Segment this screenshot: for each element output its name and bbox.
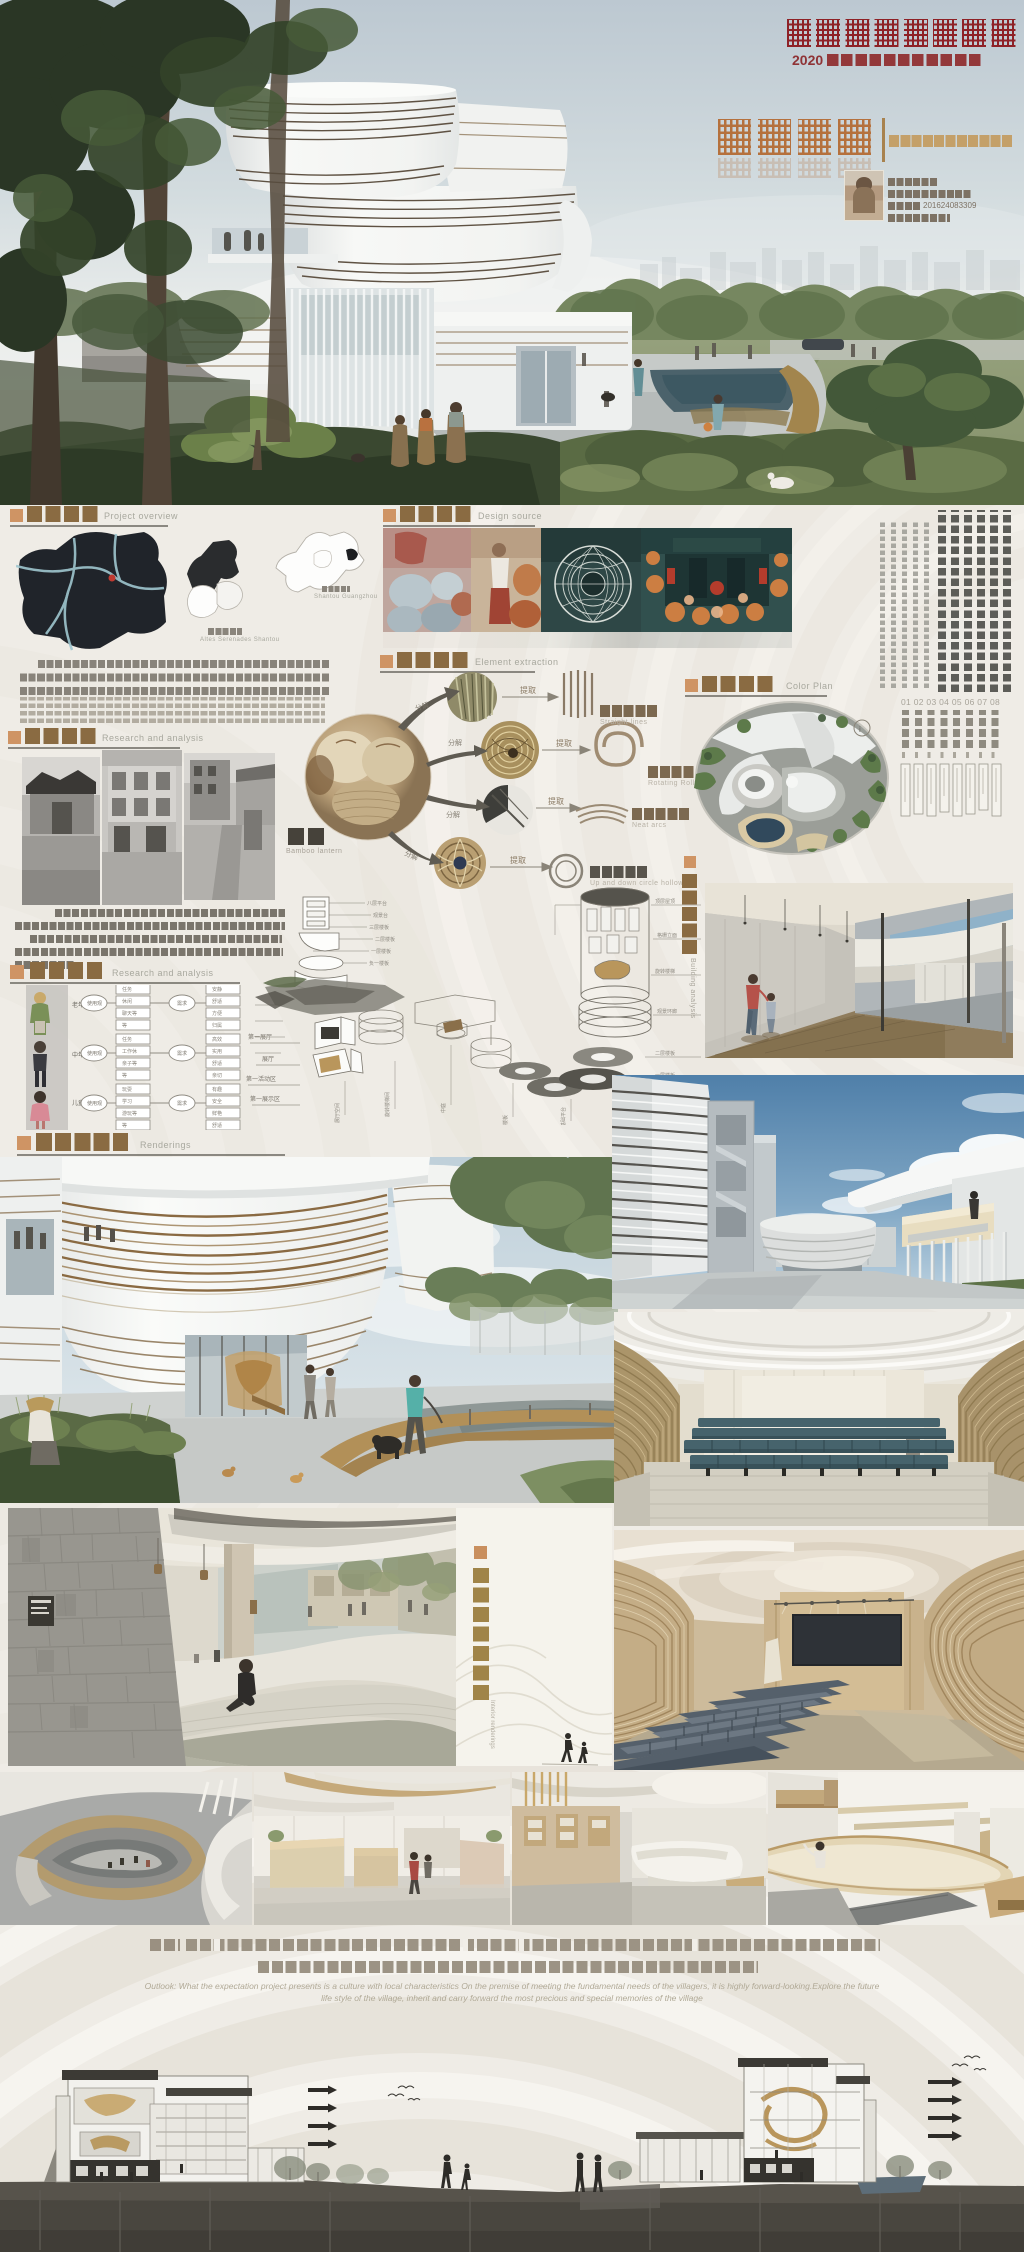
svg-text:等: 等: [122, 1072, 127, 1079]
svg-text:安全: 安全: [212, 1098, 222, 1105]
svg-text:使用观: 使用观: [87, 1100, 102, 1107]
svg-text:学习: 学习: [122, 1098, 132, 1105]
svg-text:一层楼板: 一层楼板: [371, 948, 391, 955]
svg-text:使用观: 使用观: [87, 1050, 102, 1057]
svg-text:负一楼板: 负一楼板: [369, 960, 389, 967]
svg-text:八层平台: 八层平台: [367, 900, 387, 907]
svg-text:休闲: 休闲: [122, 998, 132, 1005]
svg-text:分解: 分解: [448, 738, 462, 747]
svg-text:观景台: 观景台: [373, 912, 388, 919]
svg-text:旋转楼梯: 旋转楼梯: [655, 968, 675, 975]
svg-text:楼板: 楼板: [502, 1115, 509, 1125]
svg-text:安静: 安静: [212, 986, 222, 993]
svg-text:有趣: 有趣: [212, 1086, 222, 1093]
svg-text:提取: 提取: [520, 685, 536, 695]
svg-text:提取: 提取: [510, 855, 526, 865]
svg-text:二层楼板: 二层楼板: [375, 936, 395, 943]
svg-text:基础平台: 基础平台: [560, 1107, 567, 1125]
svg-text:高效: 高效: [212, 1036, 222, 1043]
svg-text:实用: 实用: [212, 1048, 222, 1055]
svg-text:展厅空间: 展厅空间: [334, 1103, 341, 1123]
svg-text:等: 等: [122, 1122, 127, 1129]
svg-text:使用观: 使用观: [87, 1000, 102, 1007]
svg-text:舒适: 舒适: [212, 1122, 222, 1129]
svg-text:玩耍: 玩耍: [122, 1087, 132, 1093]
svg-text:顶层屋顶: 顶层屋顶: [655, 899, 675, 905]
svg-text:方便: 方便: [212, 1010, 222, 1017]
svg-text:需求: 需求: [177, 1050, 187, 1057]
svg-text:旋转楼梯间: 旋转楼梯间: [384, 1092, 391, 1117]
svg-text:分解: 分解: [414, 700, 430, 713]
svg-text:二层楼板: 二层楼板: [655, 1050, 675, 1057]
svg-text:舒适: 舒适: [212, 1060, 222, 1067]
svg-text:等: 等: [122, 1022, 127, 1029]
svg-text:亲子等: 亲子等: [122, 1060, 137, 1067]
svg-text:任务: 任务: [122, 1036, 132, 1043]
svg-text:需求: 需求: [177, 1000, 187, 1007]
svg-text:分解: 分解: [446, 810, 460, 819]
svg-text:中庭: 中庭: [440, 1103, 447, 1113]
svg-text:格栅立面: 格栅立面: [657, 932, 677, 939]
svg-text:三层楼板: 三层楼板: [369, 924, 389, 931]
svg-text:提取: 提取: [556, 738, 572, 748]
svg-text:鲜艳: 鲜艳: [212, 1110, 222, 1117]
svg-text:i: i: [859, 725, 861, 734]
svg-text:游玩等: 游玩等: [122, 1110, 137, 1117]
svg-text:工作休: 工作休: [122, 1048, 137, 1055]
svg-text:舒适: 舒适: [212, 998, 222, 1005]
svg-text:任务: 任务: [122, 986, 132, 993]
svg-text:亲切: 亲切: [212, 1072, 222, 1079]
svg-text:提取: 提取: [548, 796, 564, 806]
svg-text:观景环廊: 观景环廊: [657, 1008, 677, 1015]
svg-text:需求: 需求: [177, 1100, 187, 1107]
svg-text:聊天等: 聊天等: [122, 1010, 137, 1017]
svg-text:归属: 归属: [212, 1022, 222, 1029]
